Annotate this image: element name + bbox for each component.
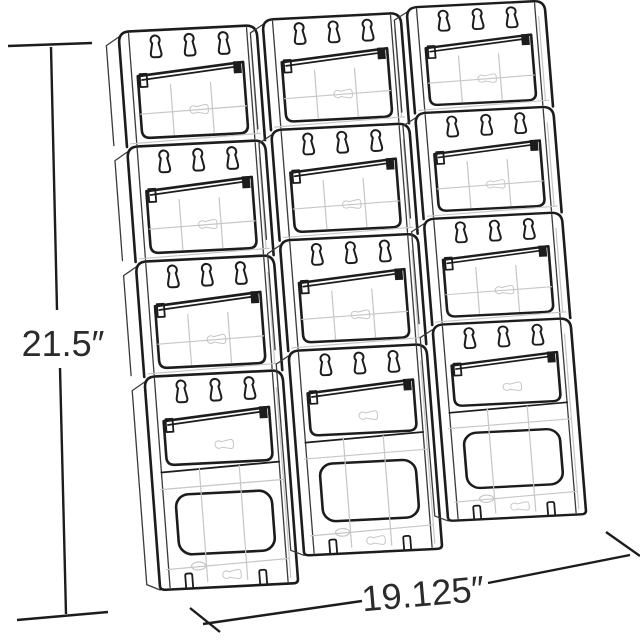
product-dimension-diagram: 21.5″ 19.125″ <box>0 0 640 640</box>
diagram-canvas: 21.5″ 19.125″ <box>0 0 640 640</box>
height-dimension-label: 21.5″ <box>22 323 105 364</box>
